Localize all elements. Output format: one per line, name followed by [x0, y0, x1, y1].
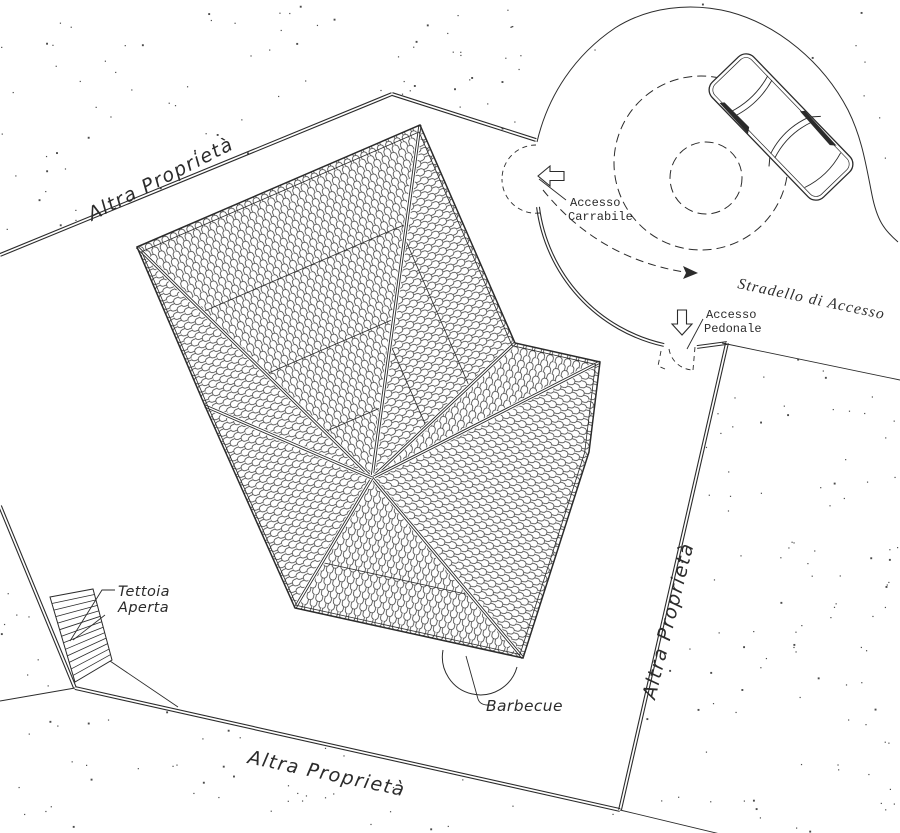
roof	[136, 125, 600, 659]
site-plan-sheet: Altra Proprietà Altra Proprietà Altra Pr…	[0, 0, 900, 833]
car	[700, 44, 863, 209]
accesso-pedonale-arrow-icon	[672, 310, 692, 335]
accesso-carrabile-arrow-icon	[538, 166, 564, 186]
label-accesso-pedonale-line1: Accesso	[706, 308, 756, 322]
accesso-carrabile-leader-line	[539, 179, 566, 200]
label-altra-proprieta-right: Altra Proprietà	[638, 540, 699, 703]
gates	[502, 145, 695, 370]
site-plan-drawing: Altra Proprietà Altra Proprietà Altra Pr…	[0, 0, 900, 833]
barbecue-leader-line	[466, 656, 488, 705]
label-stradello-di-accesso: Stradello di Accesso	[736, 275, 887, 323]
label-accesso-pedonale-line2: Pedonale	[704, 322, 762, 336]
barbecue-arc	[442, 650, 517, 695]
label-tettoia-line1: Tettoia	[118, 584, 170, 600]
label-altra-proprieta-top: Altra Proprietà	[83, 133, 238, 226]
label-tettoia-line2: Aperta	[117, 600, 169, 616]
tettoia-aperta	[50, 589, 112, 682]
driveway	[537, 7, 898, 279]
label-accesso-carrabile-line2: Carrabile	[568, 210, 633, 224]
label-accesso-carrabile-line1: Accesso	[570, 196, 620, 210]
plan-linework	[0, 4, 900, 833]
label-altra-proprieta-bottom: Altra Proprietà	[244, 746, 408, 801]
label-barbecue: Barbecue	[486, 697, 563, 715]
